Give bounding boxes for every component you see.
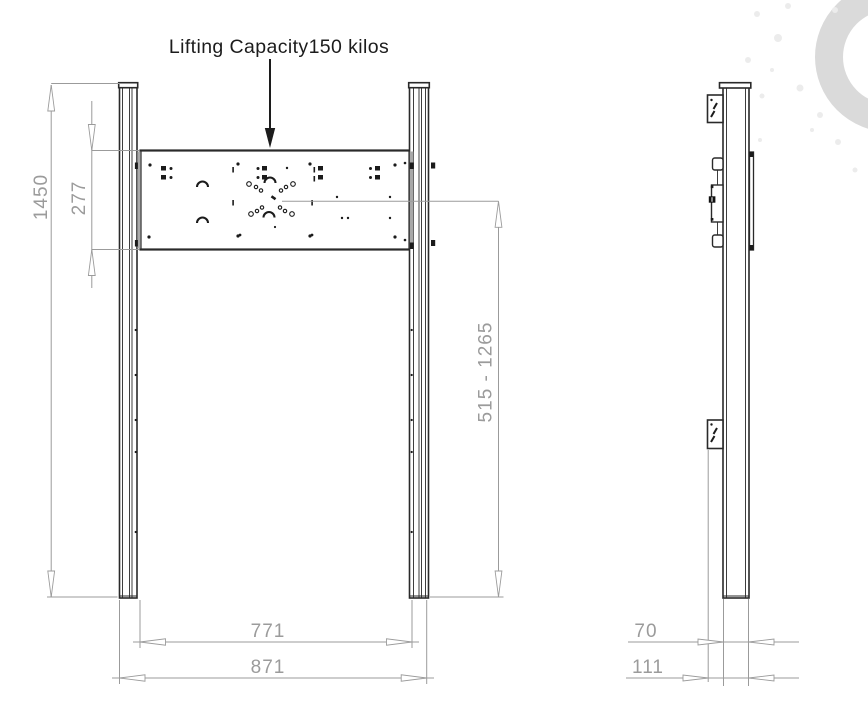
technical-drawing: 1450 277 515 - 1265 771 — [0, 0, 868, 723]
front-view: 1450 277 515 - 1265 771 — [31, 59, 504, 684]
capacity-annotation: Lifting Capacity150 kilos — [169, 36, 389, 58]
dim-column-depth: 70 — [628, 450, 799, 686]
side-column-cap — [720, 83, 751, 88]
carriage-bracket — [709, 158, 723, 247]
dim-label-bracket-height: 277 — [69, 181, 90, 216]
dim-label-overall-depth: 111 — [632, 657, 664, 678]
dim-lift-range: 515 - 1265 — [282, 201, 504, 597]
plate-side-edge — [750, 152, 754, 250]
wall-bracket-bottom — [708, 420, 724, 449]
right-column-cap — [409, 83, 430, 88]
left-column-cap — [119, 83, 138, 88]
capacity-arrow — [265, 59, 275, 148]
dim-label-lift-range: 515 - 1265 — [476, 322, 497, 423]
dim-overall-depth: 111 — [626, 657, 799, 681]
dim-total-height: 1450 — [31, 84, 120, 598]
wall-bracket-top — [708, 95, 724, 123]
left-column — [119, 83, 138, 598]
side-column — [720, 83, 751, 598]
dim-label-inner-width: 771 — [251, 621, 286, 642]
dim-label-total-height: 1450 — [31, 174, 52, 220]
dim-label-outer-width: 871 — [251, 657, 286, 678]
side-view: 70 111 — [626, 83, 799, 686]
dim-inner-width: 771 — [133, 600, 419, 648]
watermark — [745, 0, 868, 173]
dim-label-column-depth: 70 — [634, 621, 657, 642]
watermark-ring — [829, 0, 868, 118]
drawing-svg: 1450 277 515 - 1265 771 — [0, 0, 868, 723]
